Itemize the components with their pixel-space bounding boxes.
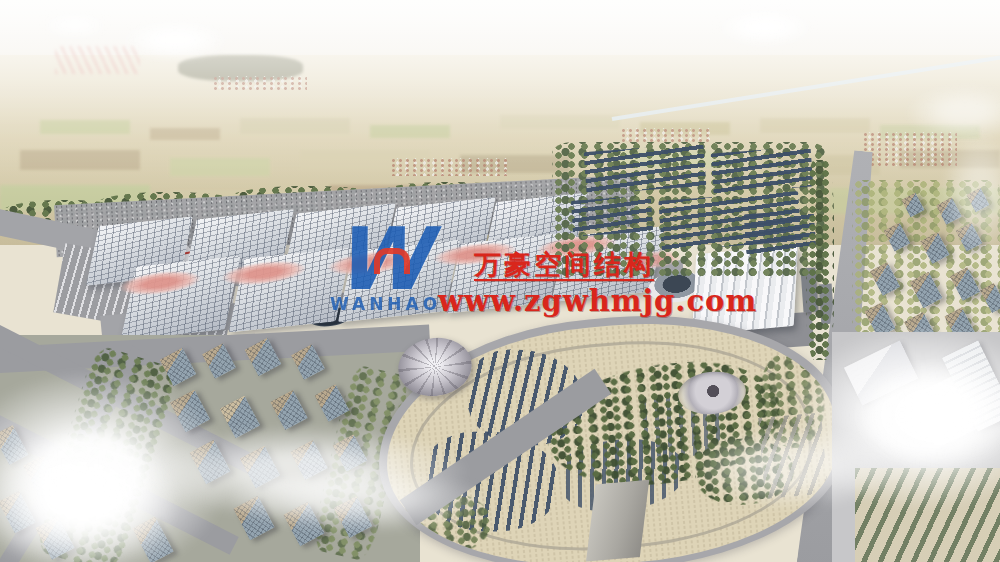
distant-village (212, 76, 307, 91)
watermark-company-name: 万豪空间结构 (474, 250, 654, 280)
watermark-website: www.zgwhmjg.com (438, 286, 757, 318)
farm-field (150, 128, 220, 140)
solar-array (584, 144, 707, 194)
farm-field (40, 120, 130, 134)
solar-array (571, 195, 653, 236)
runway-strips (55, 46, 140, 74)
logo-wordmark: WANHAO (330, 296, 441, 313)
farm-field (500, 115, 620, 129)
farm-field (170, 158, 270, 176)
logo-red-arch-icon (374, 248, 410, 274)
avenue-trees (806, 160, 834, 360)
orchard-rows (855, 468, 1000, 562)
farm-field (20, 150, 140, 170)
aerial-rendering: W WANHAO 万豪空间结构 www.zgwhmjg.com (0, 0, 1000, 562)
farm-field (240, 118, 350, 134)
solar-array (711, 147, 814, 194)
farm-field (370, 125, 450, 138)
farm-field (760, 118, 870, 133)
terrace-steps (758, 412, 828, 498)
distant-village (620, 128, 710, 142)
distant-village (390, 158, 510, 176)
ramp-structure (586, 480, 649, 562)
distant-town (862, 132, 957, 166)
